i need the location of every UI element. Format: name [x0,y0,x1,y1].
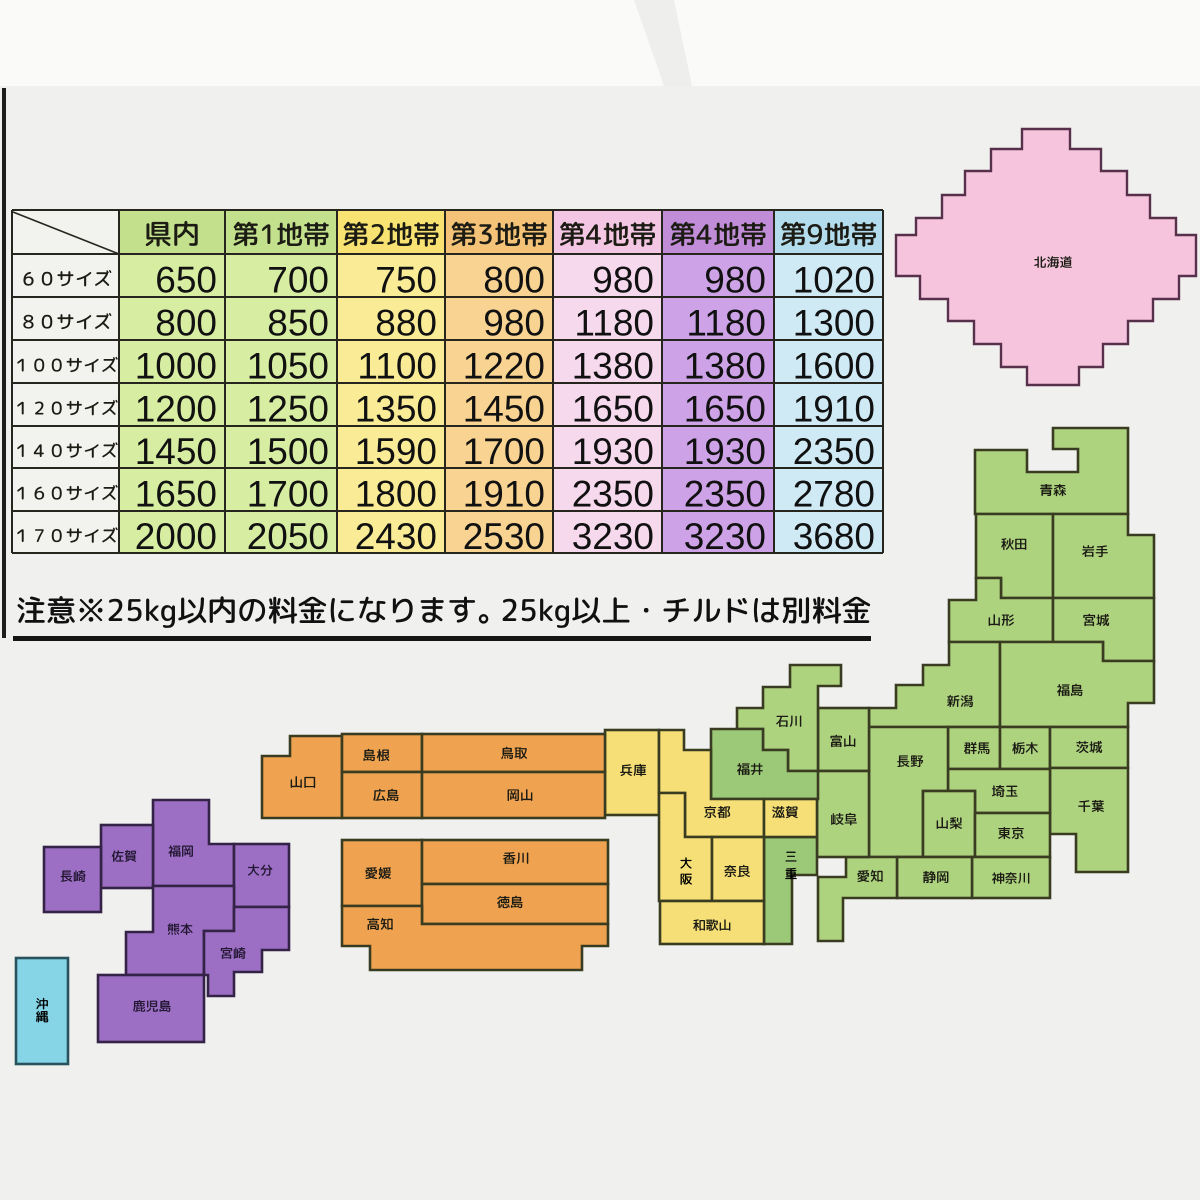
svg-text:800: 800 [483,260,545,301]
svg-text:650: 650 [155,260,217,301]
svg-text:980: 980 [704,260,766,301]
svg-text:1200: 1200 [135,389,217,430]
svg-text:1180: 1180 [686,303,766,344]
svg-text:1500: 1500 [247,431,329,472]
svg-text:2350: 2350 [572,474,654,515]
svg-text:2530: 2530 [463,516,545,557]
svg-text:800: 800 [155,303,217,344]
svg-text:1380: 1380 [684,346,766,387]
svg-text:1380: 1380 [572,346,654,387]
svg-text:3230: 3230 [684,516,766,557]
svg-text:1800: 1800 [355,474,437,515]
svg-text:2000: 2000 [135,516,217,557]
svg-text:1700: 1700 [247,474,329,515]
svg-text:1100: 1100 [357,346,437,387]
svg-text:1250: 1250 [247,389,329,430]
svg-text:1220: 1220 [463,346,545,387]
svg-text:850: 850 [267,303,329,344]
svg-text:2430: 2430 [355,516,437,557]
svg-text:1450: 1450 [463,389,545,430]
svg-text:750: 750 [375,260,437,301]
svg-text:1910: 1910 [793,389,875,430]
svg-text:1650: 1650 [135,474,217,515]
svg-text:1600: 1600 [793,346,875,387]
svg-text:2350: 2350 [793,431,875,472]
svg-text:1700: 1700 [463,431,545,472]
svg-text:980: 980 [483,303,545,344]
svg-text:700: 700 [267,260,329,301]
svg-text:2780: 2780 [793,474,875,515]
svg-text:3680: 3680 [793,516,875,557]
svg-text:1350: 1350 [355,389,437,430]
svg-text:1930: 1930 [684,431,766,472]
svg-text:1650: 1650 [572,389,654,430]
svg-text:1590: 1590 [355,431,437,472]
svg-text:1050: 1050 [247,346,329,387]
svg-text:1930: 1930 [572,431,654,472]
svg-text:2350: 2350 [684,474,766,515]
svg-text:980: 980 [592,260,654,301]
svg-text:880: 880 [375,303,437,344]
svg-text:1180: 1180 [574,303,654,344]
svg-text:2050: 2050 [247,516,329,557]
svg-text:1450: 1450 [135,431,217,472]
svg-text:1650: 1650 [684,389,766,430]
svg-text:1910: 1910 [463,474,545,515]
svg-text:3230: 3230 [572,516,654,557]
svg-text:1020: 1020 [793,260,875,301]
svg-text:1300: 1300 [793,303,875,344]
svg-text:1000: 1000 [135,346,217,387]
